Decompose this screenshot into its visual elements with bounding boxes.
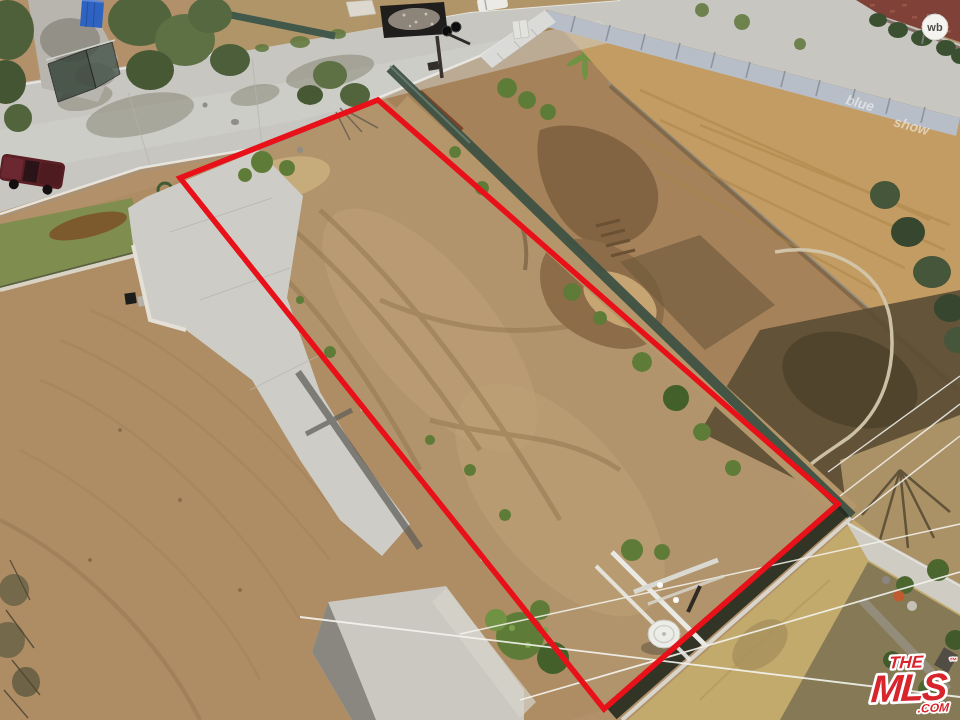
aerial-photo: blue show (0, 0, 960, 720)
mls-logo-tm: ™ (949, 656, 958, 665)
white-shed (346, 0, 376, 17)
terracotta-pot (894, 591, 905, 602)
storage-container (80, 0, 104, 28)
white-pot (907, 601, 917, 611)
small-tree (663, 385, 689, 411)
wb-sign-label: wb (926, 21, 943, 33)
porta-potty (512, 19, 529, 39)
mls-logo-com: .COM (917, 700, 950, 715)
utility-box-dark (124, 292, 136, 304)
